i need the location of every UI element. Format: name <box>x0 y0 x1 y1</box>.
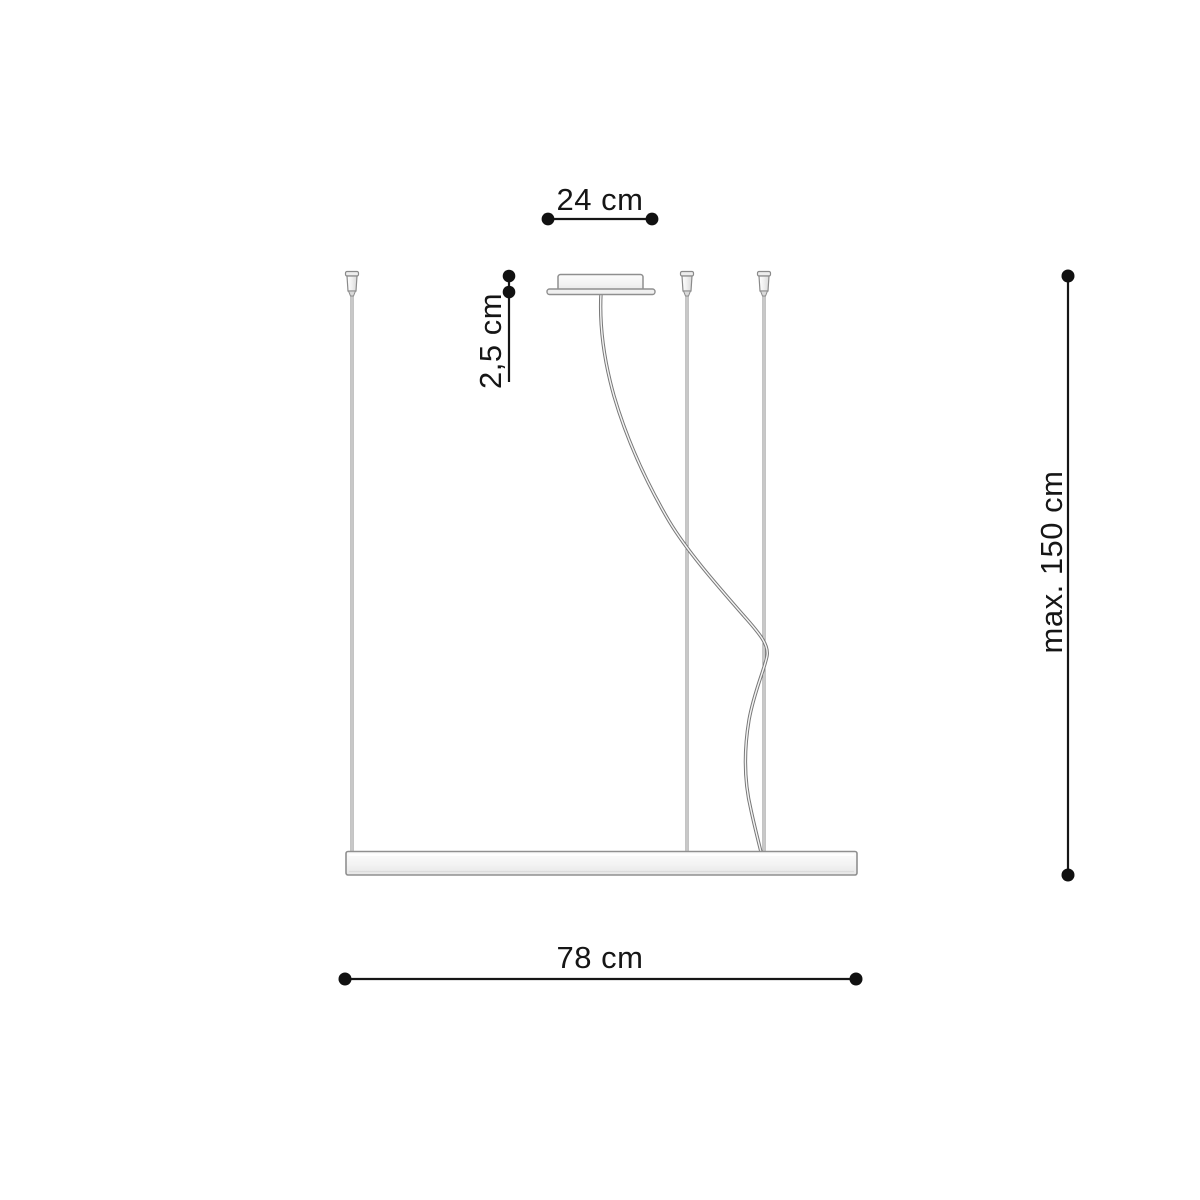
dimension-dot <box>850 973 863 986</box>
cable-gripper-middle <box>681 272 694 297</box>
cable-gripper-right <box>758 272 771 297</box>
pendant-lamp-dimension-diagram: 24 cm 2,5 cm max. 150 cm 78 cm <box>0 0 1200 1200</box>
canopy-flange <box>547 289 655 295</box>
cable-gripper-left <box>346 272 359 297</box>
canopy-height-label: 2,5 cm <box>474 293 508 389</box>
dimension-dot <box>339 973 352 986</box>
fixture-length-label: 78 cm <box>557 941 644 975</box>
dimension-dot <box>542 213 555 226</box>
lamp-bar <box>346 852 857 876</box>
ceiling-canopy <box>547 275 655 295</box>
dimension-dot <box>1062 270 1075 283</box>
canopy-width-label: 24 cm <box>557 183 644 217</box>
dimension-dot <box>503 270 516 283</box>
power-cord <box>601 293 768 852</box>
max-suspension-label: max. 150 cm <box>1035 471 1069 654</box>
diagram-canvas <box>0 0 1200 1200</box>
dimension-dot <box>646 213 659 226</box>
dimension-dot <box>1062 869 1075 882</box>
